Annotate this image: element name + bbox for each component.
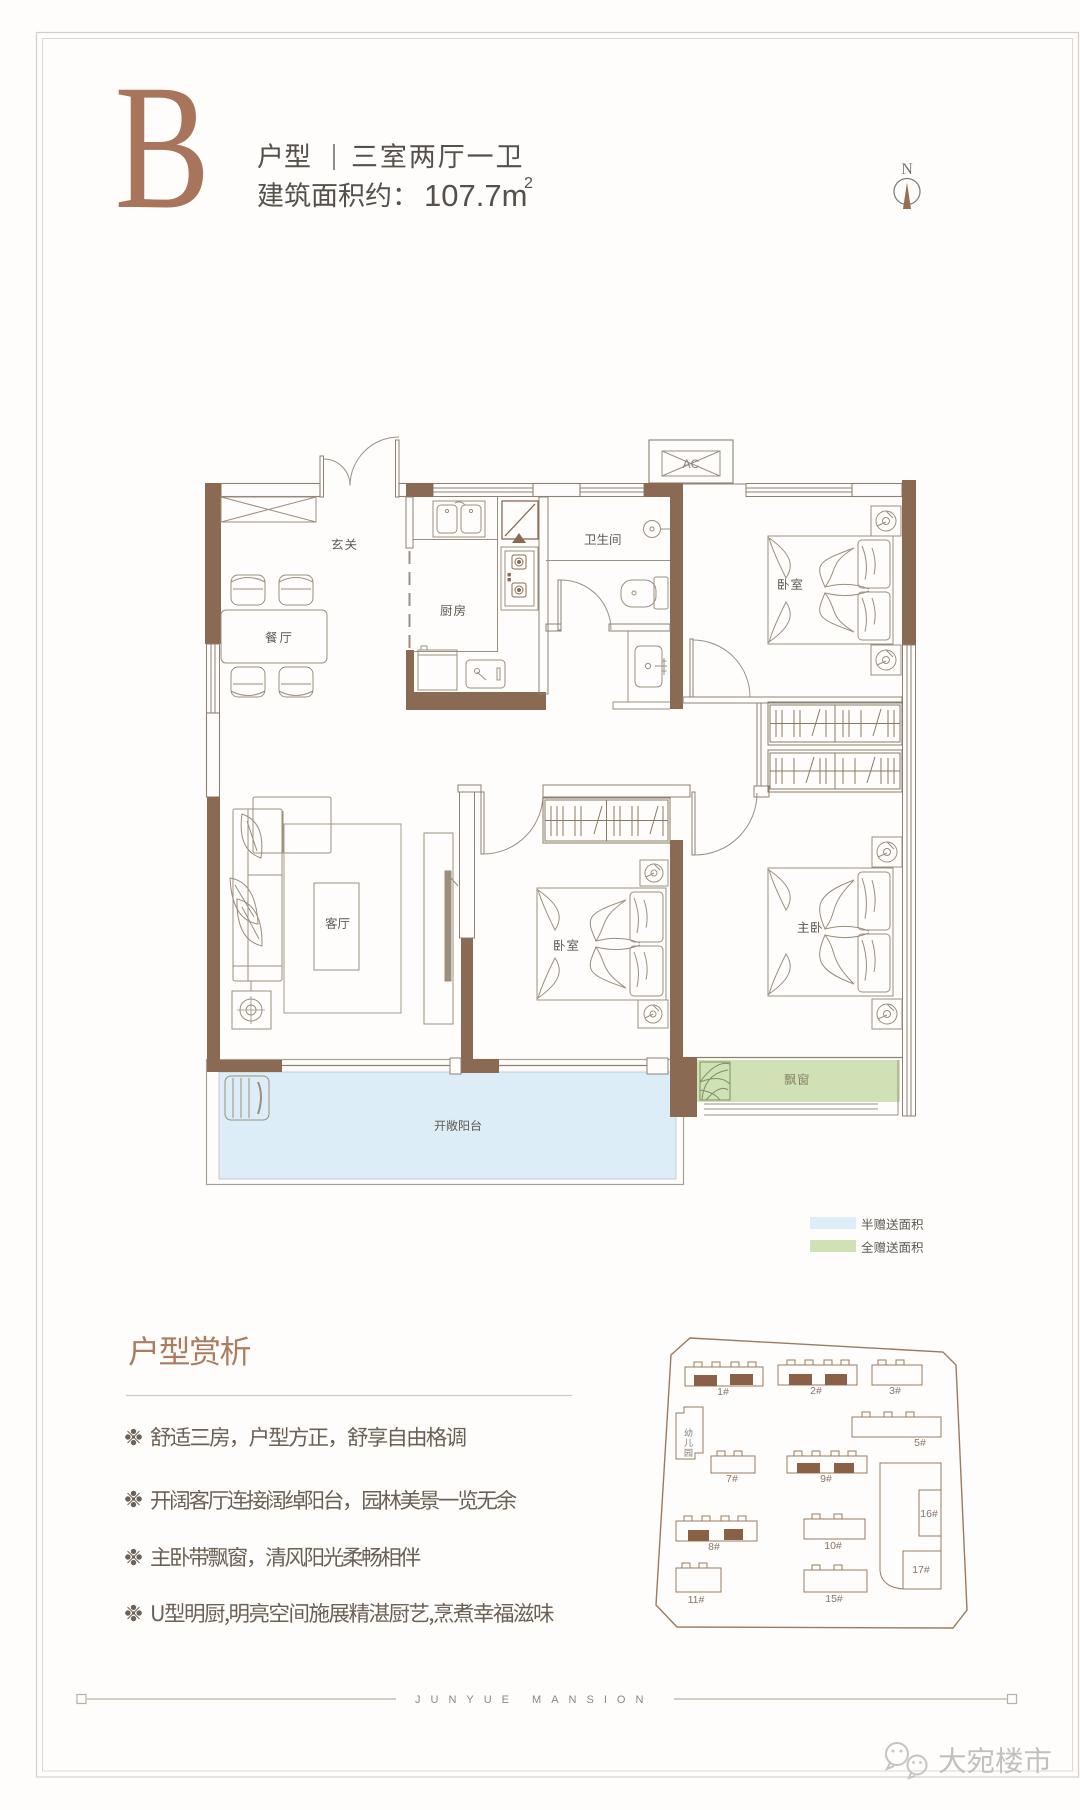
svg-text:10#: 10# <box>824 1540 842 1552</box>
svg-text:5#: 5# <box>914 1437 926 1449</box>
svg-text:11#: 11# <box>688 1594 705 1606</box>
svg-text:9#: 9# <box>820 1473 832 1485</box>
svg-text:JUNYUE MANSION: JUNYUE MANSION <box>415 1694 653 1706</box>
svg-text:1#: 1# <box>717 1386 729 1398</box>
svg-text:107.7m: 107.7m <box>424 178 527 213</box>
svg-text:AC: AC <box>683 457 700 471</box>
svg-text:8#: 8# <box>708 1541 720 1553</box>
svg-text:2#: 2# <box>810 1385 822 1397</box>
svg-text:7#: 7# <box>726 1473 738 1485</box>
svg-text:3#: 3# <box>889 1385 901 1397</box>
svg-text:16#: 16# <box>920 1508 938 1520</box>
svg-text:N: N <box>901 161 913 178</box>
svg-text:15#: 15# <box>825 1593 843 1605</box>
svg-text:17#: 17# <box>912 1564 930 1576</box>
svg-text:2: 2 <box>524 175 533 192</box>
svg-text:B: B <box>115 49 211 247</box>
